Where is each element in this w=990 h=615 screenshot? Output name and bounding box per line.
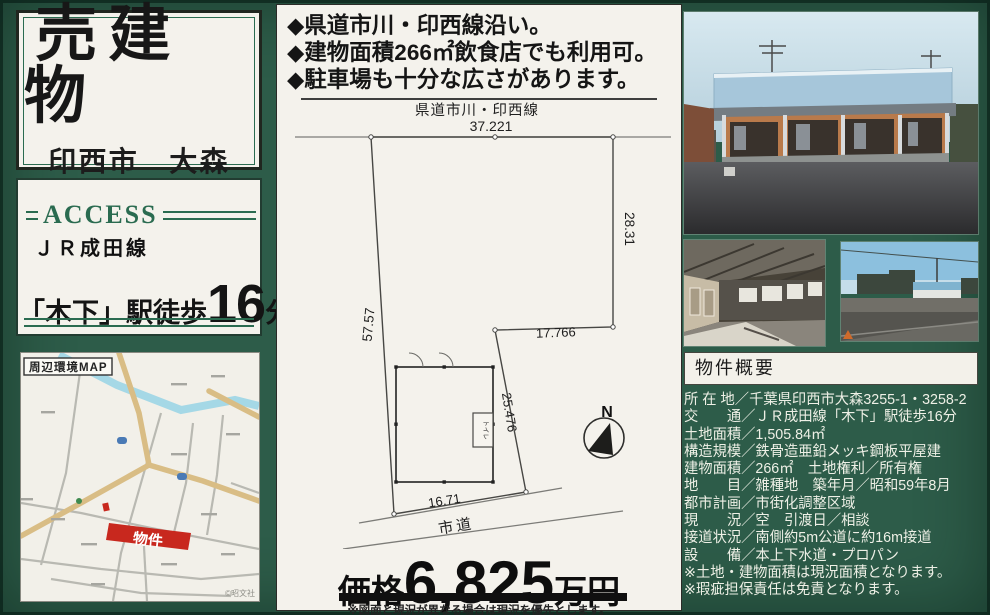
plan-door-arc: [439, 353, 453, 367]
rail-line-label: ＪＲ成田線: [34, 232, 260, 261]
map-route-shield: [177, 473, 187, 480]
summary-heading: 物件概要: [684, 352, 978, 385]
access-rule-right: [163, 211, 256, 220]
summary-row: 都市計画／市街化調整区域: [684, 496, 981, 513]
plan-bottom-road-line: [343, 511, 623, 549]
summary-row: 所 在 地／千葉県印西市大森3255-1・3258-2: [684, 392, 981, 409]
sale-title-panel: 売建物 印西市 大森: [16, 10, 262, 170]
summary-row: 交 通／ＪＲ成田線「木下」駅徒歩16分: [684, 409, 981, 426]
plan-lot-boundary: [371, 137, 613, 514]
photo-detail-box: [724, 167, 735, 176]
map-copyright: ©昭文社: [225, 588, 255, 598]
plan-dim-bottom: 16.71: [427, 491, 461, 511]
price-underline-bar: [339, 593, 627, 601]
photo-street-view: [841, 242, 978, 341]
access-panel: ACCESS ＪＲ成田線 「木下」駅徒歩16分: [16, 178, 262, 336]
compass-needle: [588, 423, 613, 455]
photo-building-exterior: [684, 12, 978, 234]
area-map: 物件 周辺環境MAP ©昭文社: [21, 353, 259, 601]
area-map-panel: 物件 周辺環境MAP ©昭文社: [20, 352, 260, 602]
plan-boundary-points: [369, 135, 615, 516]
summary-row: 設 備／本上下水道・プロパン: [684, 548, 981, 565]
map-route-shield: [117, 437, 127, 444]
plan-dim-step: 17.766: [536, 324, 576, 340]
summary-footnote: ※瑕疵担保責任は免責となります。: [684, 582, 981, 599]
plan-bottom-road-label: 市道: [437, 515, 475, 537]
site-plan-panel: ◆県道市川・印西線沿い。 ◆建物面積266㎡飲食店でも利用可。 ◆駐車場も十分な…: [276, 4, 682, 611]
plan-dim-left: 57.57: [360, 307, 378, 342]
access-heading: ACCESS: [38, 202, 163, 228]
feature-bullet: ◆建物面積266㎡飲食店でも利用可。: [287, 39, 681, 66]
summary-row: 地 目／雑種地 築年月／昭和59年8月: [684, 478, 981, 495]
location-subtitle: 印西市 大森: [48, 140, 229, 180]
bullet-divider: [301, 98, 657, 100]
map-poi-dot: [76, 498, 82, 504]
street-blue-roof: [913, 282, 961, 290]
map-property-flag: [102, 502, 110, 511]
street-midground: [841, 298, 978, 312]
flyer-page: 売建物 印西市 大森 ACCESS ＪＲ成田線 「木下」駅徒歩16分: [0, 0, 990, 615]
plan-dim-right-upper: 28.31: [622, 212, 637, 246]
plan-room-label: トイレ: [482, 420, 489, 440]
map-property-banner-label: 物件: [132, 529, 164, 550]
access-rule-bottom: [24, 318, 254, 327]
summary-footnote: ※土地・建物面積は現況面積となります。: [684, 565, 981, 582]
plan-door-arc: [409, 353, 423, 367]
feature-bullets: ◆県道市川・印西線沿い。 ◆建物面積266㎡飲食店でも利用可。 ◆駐車場も十分な…: [277, 5, 681, 93]
feature-bullet: ◆駐車場も十分な広さがあります。: [287, 66, 681, 93]
plan-dim-top: 37.221: [470, 118, 513, 134]
feature-bullet: ◆県道市川・印西線沿い。: [287, 12, 681, 39]
access-rule-left: [26, 211, 38, 220]
sale-type-title: 売建物: [24, 4, 254, 128]
compass-rose: N: [584, 404, 624, 458]
summary-row: 建物面積／266㎡ 土地権利／所有権: [684, 461, 981, 478]
plan-dim-right-lower: 25.476: [499, 391, 520, 433]
access-heading-row: ACCESS: [26, 202, 260, 228]
photo-building-interior: [684, 240, 825, 346]
compass-north-label: N: [601, 404, 613, 421]
plan-footnote: ※図面と現況が異なる場合は現況を優先とします。: [277, 602, 681, 615]
summary-row: 接道状況／南側約5m公道に約16m接道: [684, 530, 981, 547]
lot-site-plan: 県道市川・印西線 37.221 28.31 57.57 17.766 25.47…: [277, 101, 683, 549]
plan-top-road-label: 県道市川・印西線: [415, 102, 539, 119]
property-summary: 所 在 地／千葉県印西市大森3255-1・3258-2 交 通／ＪＲ成田線「木下…: [684, 392, 986, 600]
summary-row: 構造規模／鉄骨造亜鉛メッキ鋼板平屋建: [684, 444, 981, 461]
sale-title-inner-frame: 売建物 印西市 大森: [23, 17, 255, 165]
street-building-wall: [913, 290, 961, 298]
summary-row: 土地面積／1,505.84㎡: [684, 427, 981, 444]
map-title-label: 周辺環境MAP: [29, 360, 108, 374]
summary-row: 現 況／空 引渡日／相談: [684, 513, 981, 530]
